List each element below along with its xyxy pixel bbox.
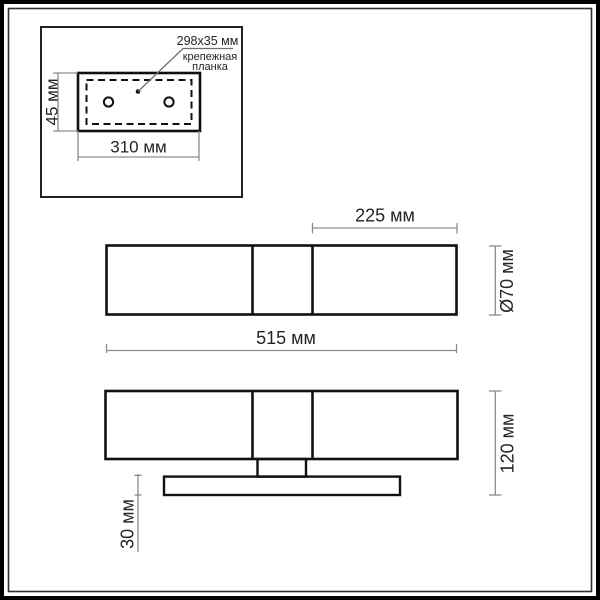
dim-310-label: 310 мм (110, 138, 166, 157)
technical-drawing-page: 298x35 мм крепежная планка 45 мм 310 мм … (0, 0, 600, 600)
top-view-outline (107, 246, 457, 315)
front-view-outline (106, 391, 458, 459)
mounting-plate-dashed-outline (87, 80, 192, 124)
dim-45-label: 45 мм (43, 78, 62, 125)
dim-515-label: 515 мм (256, 328, 316, 348)
mounting-hole-right (164, 97, 173, 106)
callout-size-label: 298x35 мм (177, 34, 239, 48)
front-view-base-outline (164, 477, 400, 495)
dim-225-label: 225 мм (355, 206, 415, 226)
front-view-stem-outline (258, 459, 307, 477)
mounting-plate-outline (78, 73, 200, 131)
mounting-hole-left (104, 97, 113, 106)
drawing-canvas: 298x35 мм крепежная планка 45 мм 310 мм … (0, 0, 600, 600)
callout-name-line2: планка (192, 61, 229, 73)
dim-30-label: 30 мм (118, 499, 138, 549)
dim-70-label: Ø70 мм (497, 249, 517, 313)
dim-120-label: 120 мм (498, 414, 518, 474)
